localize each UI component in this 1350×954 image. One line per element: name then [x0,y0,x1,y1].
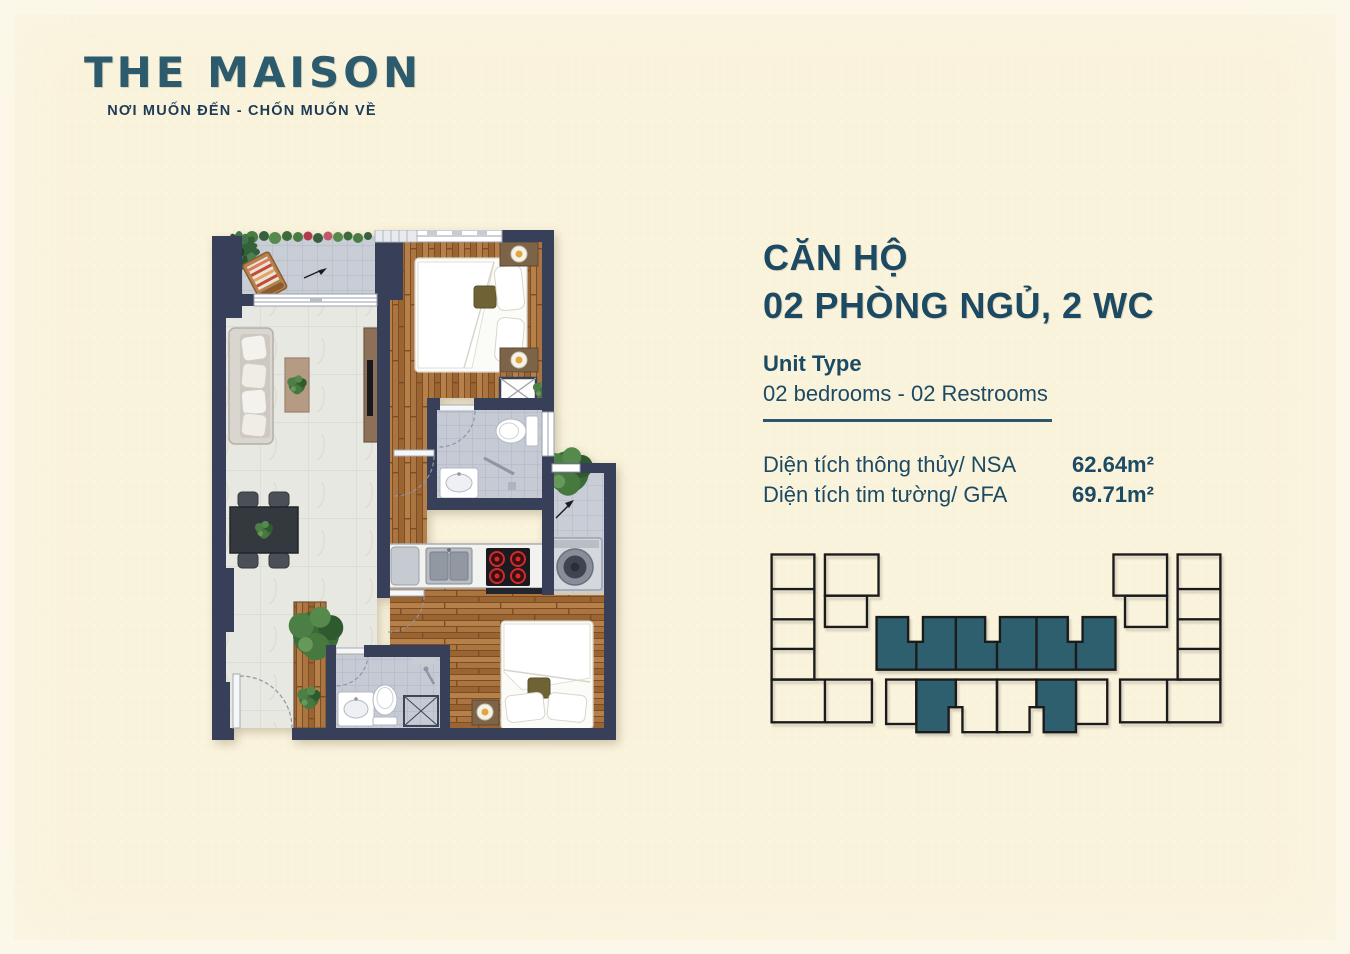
poster-background: THE MAISON NƠI MUỐN ĐẾN - CHỐN MUỐN VỀ [0,0,1350,954]
kitchen-sink-icon [426,548,472,584]
sliding-window [254,294,377,306]
coffee-table-icon [285,358,309,412]
accent-pillow-icon [474,286,496,308]
door-leaf [336,648,368,654]
pillow-icon [547,692,588,723]
area-label: Diện tích thông thủy/ NSA [763,450,1072,480]
unit-type-value: 02 bedrooms - 02 Restrooms [763,379,1048,409]
brand-tagline: NƠI MUỐN ĐẾN - CHỐN MUỐN VỀ [84,103,400,119]
unit-type-label: Unit Type [763,349,1048,379]
nightstand-icon [472,700,499,725]
window [542,412,554,456]
unit-type-block: Unit Type 02 bedrooms - 02 Restrooms [763,349,1048,409]
drain-grid [375,230,417,242]
divider-line [763,419,1052,422]
site-key-plan [765,551,1227,741]
brand-logo: THE MAISON [84,48,400,97]
cooktop-icon [486,548,530,586]
corridor-floor [390,398,427,545]
kitchen [388,544,544,594]
area-label: Diện tích tim tường/ GFA [763,480,1072,510]
toilet-icon [373,685,397,725]
tv-console-icon [364,328,378,442]
area-row-nsa: Diện tích thông thủy/ NSA62.64m² [763,450,1154,480]
shelf-icon [412,658,436,664]
window [417,230,502,242]
floor-plan [212,230,616,742]
washing-machine-icon [549,538,602,590]
sofa-icon [229,328,273,444]
sink-icon [338,692,374,726]
floor-drain-icon [508,482,516,490]
area-value: 69.71m² [1072,482,1154,507]
door-leaf [388,590,424,596]
area-value: 62.64m² [1072,452,1154,477]
unit-title: CĂN HỘ 02 PHÒNG NGỦ, 2 WC [763,234,1154,330]
unit-title-line2: 02 PHÒNG NGỦ, 2 WC [763,282,1154,330]
pillow-icon [494,265,525,312]
nightstand-icon [500,348,538,372]
area-table: Diện tích thông thủy/ NSA62.64m² Diện tí… [763,450,1154,510]
unit-title-line1: CĂN HỘ [763,234,1154,282]
door-leaf [439,405,475,411]
counter-edge [486,588,544,594]
pillow-icon [505,692,546,723]
fridge-icon [391,547,419,585]
area-row-gfa: Diện tích tim tường/ GFA69.71m² [763,480,1154,510]
window [552,464,580,472]
nightstand-icon [500,242,538,266]
brand-block: THE MAISON NƠI MUỐN ĐẾN - CHỐN MUỐN VỀ [84,48,400,119]
sink-icon [440,468,478,498]
